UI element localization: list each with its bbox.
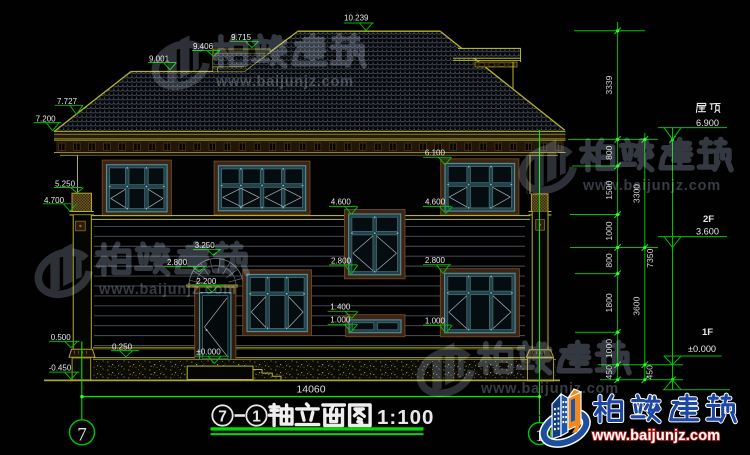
svg-text:3600: 3600	[631, 296, 641, 315]
svg-text:1800: 1800	[604, 293, 614, 312]
svg-text:www.baijunjz.com: www.baijunjz.com	[582, 178, 721, 194]
svg-text:1:100: 1:100	[377, 406, 434, 429]
svg-text:-0.450: -0.450	[49, 364, 72, 373]
svg-text:1.000: 1.000	[330, 315, 351, 324]
svg-text:www.baijunjz.com: www.baijunjz.com	[591, 428, 720, 444]
svg-text:4.600: 4.600	[425, 197, 446, 206]
svg-text:4.600: 4.600	[331, 197, 352, 206]
svg-text:1000: 1000	[604, 221, 614, 240]
svg-text:3.600: 3.600	[696, 227, 719, 237]
svg-text:0.500: 0.500	[51, 333, 72, 342]
svg-text:450: 450	[644, 365, 654, 380]
svg-text:0.250: 0.250	[112, 342, 133, 351]
svg-text:www.baijunjz.com: www.baijunjz.com	[98, 282, 237, 298]
svg-text:6.900: 6.900	[696, 118, 719, 128]
svg-text:www.baijunjz.com: www.baijunjz.com	[215, 74, 354, 90]
svg-text:7: 7	[77, 425, 87, 446]
svg-text:6.100: 6.100	[425, 149, 446, 158]
svg-text:www.baijunjz.com: www.baijunjz.com	[480, 381, 619, 397]
svg-text:1: 1	[252, 409, 261, 426]
svg-text:3339: 3339	[604, 75, 614, 94]
svg-text:1F: 1F	[702, 327, 713, 338]
svg-text:±0.000: ±0.000	[688, 344, 716, 354]
svg-text:1.400: 1.400	[330, 302, 351, 311]
svg-text:±0.000: ±0.000	[196, 347, 221, 356]
svg-text:10.239: 10.239	[344, 14, 369, 23]
svg-text:7: 7	[218, 409, 227, 426]
svg-text:7.727: 7.727	[57, 97, 78, 106]
svg-text:800: 800	[604, 253, 614, 268]
svg-text:2F: 2F	[703, 214, 714, 225]
svg-text:1.000: 1.000	[425, 316, 446, 325]
svg-text:2.800: 2.800	[425, 256, 446, 265]
svg-text:14060: 14060	[296, 384, 325, 396]
svg-text:2.800: 2.800	[331, 256, 352, 265]
svg-text:7350: 7350	[645, 248, 655, 267]
svg-text:5.250: 5.250	[55, 179, 76, 188]
